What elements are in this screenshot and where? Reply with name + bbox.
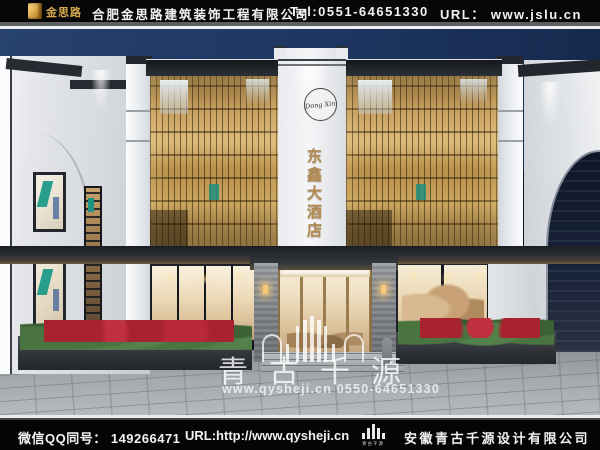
left-step-column xyxy=(126,56,152,344)
parapet-post-right xyxy=(336,46,348,59)
left-upper-window xyxy=(33,172,66,232)
left-roof-band xyxy=(146,59,282,76)
qinggu-logo-icon: 青古千源 xyxy=(357,423,389,448)
hotel-circle-logo: Dong Xin xyxy=(304,88,337,121)
header-phone: Tel:0551-64651330 xyxy=(290,4,429,19)
jinsilu-logo-icon xyxy=(28,3,42,19)
qinggu-logo-caption: 青古千源 xyxy=(357,441,389,447)
header-divider-white xyxy=(0,26,600,29)
cornice-line xyxy=(278,59,346,61)
hotel-vertical-sign: 东鑫大酒店 xyxy=(301,148,325,248)
red-flowers-right xyxy=(420,318,540,338)
wall-lamp-icon xyxy=(263,285,268,294)
header-company-name: 合肥金思路建筑装饰工程有限公司 xyxy=(92,4,310,23)
header-website: URL： www.jslu.cn xyxy=(440,4,582,23)
footer-website: URL:http://www.qysheji.cn xyxy=(185,428,349,443)
red-flowers-left xyxy=(44,320,234,342)
wall-downlight-1 xyxy=(538,82,562,134)
parapet-post-left xyxy=(274,46,286,59)
right-roof-band xyxy=(342,59,502,76)
header-bar: 金思路 合肥金思路建筑装饰工程有限公司 Tel:0551-64651330 UR… xyxy=(0,0,600,22)
left-lit-edge xyxy=(0,56,12,374)
jinsilu-logo-text: 金思路 xyxy=(46,4,82,20)
promo-image: Dong Xin 东鑫大酒店 青古千源 www.qysheji.cn 0550-… xyxy=(0,0,600,450)
hotel-logo-script: Dong Xin xyxy=(305,99,336,110)
footer-wechat-qq: 微信QQ同号： 149266471 xyxy=(18,428,180,447)
footer-bar: 微信QQ同号： 149266471 URL:http://www.qysheji… xyxy=(0,420,600,450)
footer-company-name: 安徽青古千源设计有限公司 xyxy=(404,428,590,447)
wall-downlight-3 xyxy=(90,70,112,118)
gold-screen-left xyxy=(150,76,278,248)
wall-lamp-icon xyxy=(381,285,386,294)
watermark-contact: www.qysheji.cn 0550-64651330 xyxy=(222,382,440,396)
gold-screen-right xyxy=(346,76,498,248)
